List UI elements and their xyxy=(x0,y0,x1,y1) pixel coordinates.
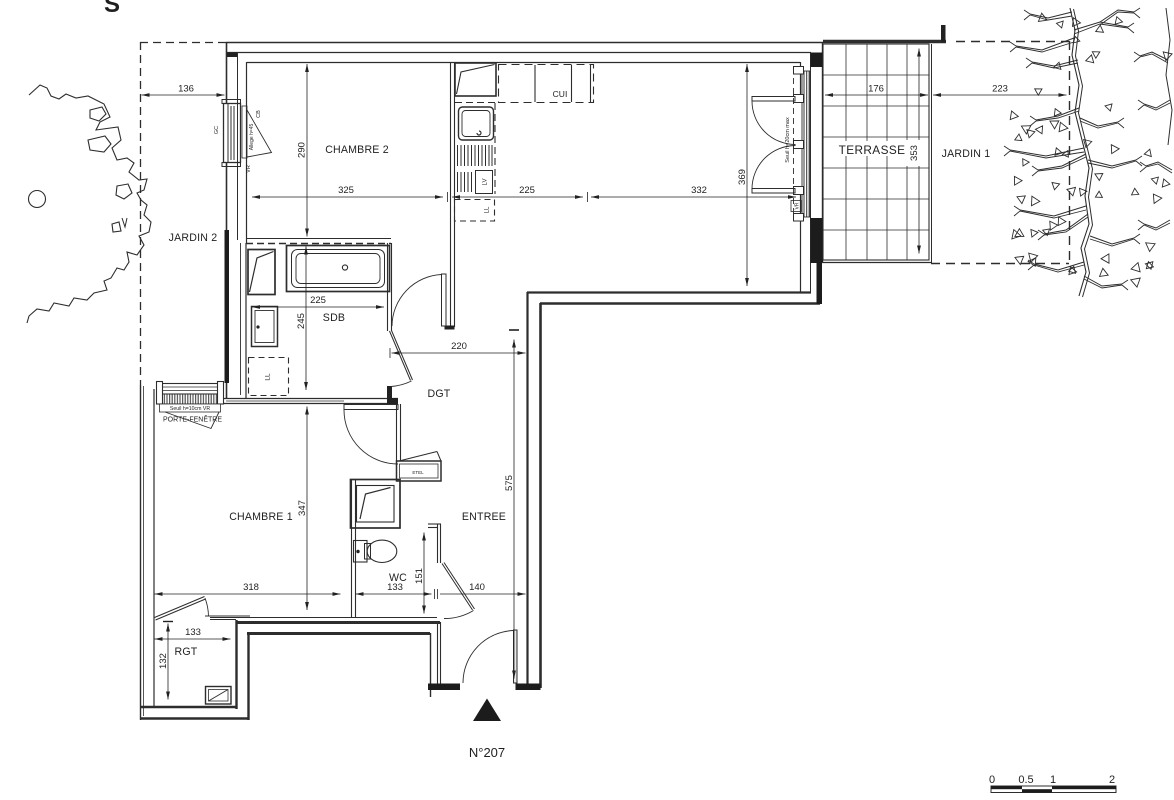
svg-text:VR: VR xyxy=(795,202,801,209)
svg-text:RGT: RGT xyxy=(175,646,198,658)
svg-text:176: 176 xyxy=(868,84,884,95)
svg-text:TERRASSE: TERRASSE xyxy=(839,143,906,157)
svg-text:S: S xyxy=(104,0,120,18)
svg-text:325: 325 xyxy=(338,185,354,196)
svg-text:225: 225 xyxy=(310,295,326,306)
svg-text:369: 369 xyxy=(737,169,748,185)
svg-text:CHAMBRE 1: CHAMBRE 1 xyxy=(229,511,293,523)
svg-text:CB: CB xyxy=(256,110,262,118)
svg-text:133: 133 xyxy=(387,582,403,593)
svg-text:225: 225 xyxy=(519,185,535,196)
svg-text:151: 151 xyxy=(414,568,425,584)
svg-text:220: 220 xyxy=(451,341,467,352)
svg-text:Seuil h=10cm VR: Seuil h=10cm VR xyxy=(170,406,210,412)
svg-text:132: 132 xyxy=(158,653,169,669)
svg-text:290: 290 xyxy=(297,142,308,158)
svg-text:JARDIN 1: JARDIN 1 xyxy=(942,148,991,160)
svg-text:Allege h=45: Allege h=45 xyxy=(249,124,255,151)
svg-text:DGT: DGT xyxy=(428,388,451,400)
svg-text:CHAMBRE 2: CHAMBRE 2 xyxy=(325,144,389,156)
svg-text:PORTE-FENÊTRE: PORTE-FENÊTRE xyxy=(163,415,222,424)
svg-text:JARDIN 2: JARDIN 2 xyxy=(169,232,218,244)
svg-text:SDB: SDB xyxy=(323,312,345,324)
svg-text:223: 223 xyxy=(992,84,1008,95)
svg-text:LL: LL xyxy=(265,373,272,381)
svg-text:VR: VR xyxy=(246,165,252,173)
svg-text:LL: LL xyxy=(485,206,491,213)
svg-text:245: 245 xyxy=(296,313,307,329)
svg-text:N°207: N°207 xyxy=(469,745,505,760)
svg-text:140: 140 xyxy=(469,582,485,593)
svg-text:133: 133 xyxy=(185,627,201,638)
svg-text:0: 0 xyxy=(989,774,995,786)
svg-text:136: 136 xyxy=(178,84,194,95)
svg-text:LV: LV xyxy=(483,179,489,186)
svg-text:ETEL: ETEL xyxy=(412,470,424,475)
svg-text:1: 1 xyxy=(1050,774,1056,786)
svg-text:GC: GC xyxy=(214,126,220,134)
svg-text:347: 347 xyxy=(297,500,308,516)
svg-text:0.5: 0.5 xyxy=(1018,774,1033,786)
svg-text:318: 318 xyxy=(243,582,259,593)
svg-text:CUI: CUI xyxy=(553,89,568,99)
svg-text:353: 353 xyxy=(909,145,920,161)
svg-text:Seuil h=20cm max: Seuil h=20cm max xyxy=(785,117,791,163)
svg-text:2: 2 xyxy=(1109,774,1115,786)
svg-text:575: 575 xyxy=(504,475,515,491)
svg-text:332: 332 xyxy=(691,185,707,196)
svg-text:ENTREE: ENTREE xyxy=(462,511,506,523)
